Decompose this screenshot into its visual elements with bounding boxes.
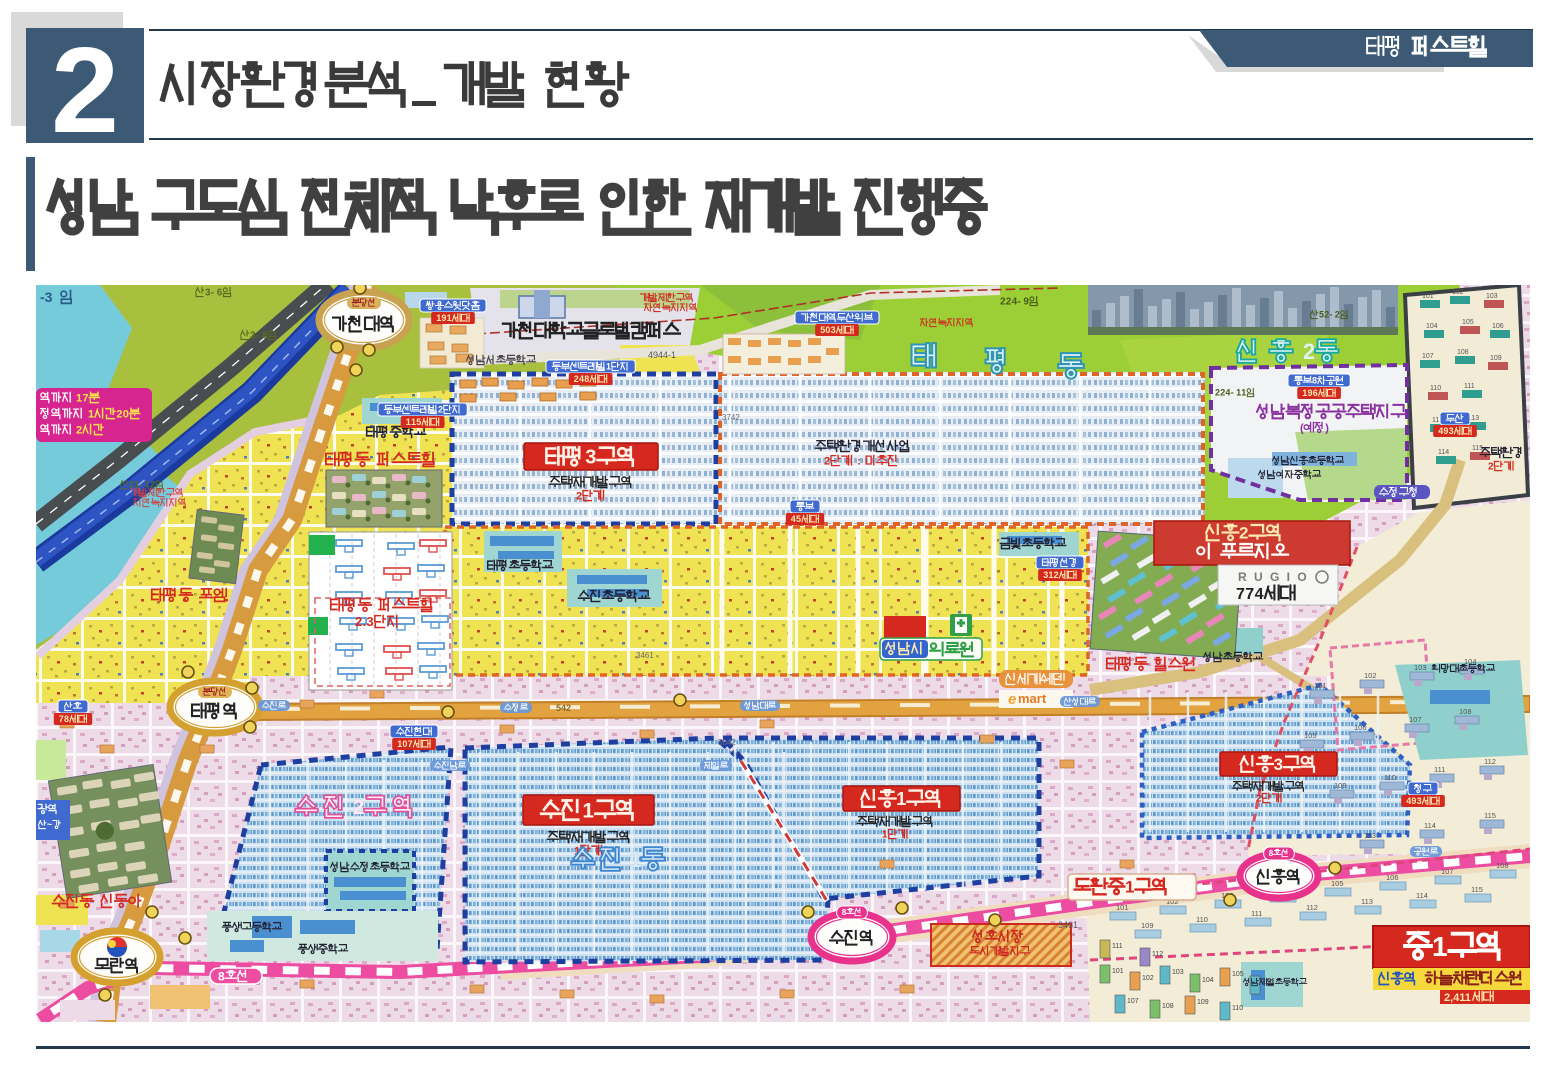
svg-text:1: 1 <box>447 313 452 323</box>
svg-text:8: 8 <box>1269 849 1274 858</box>
svg-text:115: 115 <box>1472 445 1483 452</box>
svg-text:114: 114 <box>1424 821 1436 830</box>
svg-text:542: 542 <box>556 703 571 713</box>
svg-text:mart: mart <box>1018 691 1047 706</box>
svg-text:109: 109 <box>1490 355 1502 362</box>
svg-text:109: 109 <box>1197 999 1209 1006</box>
svg-text:108: 108 <box>1162 1003 1174 1010</box>
svg-text:2: 2 <box>438 405 443 415</box>
svg-text:101: 101 <box>1422 293 1434 300</box>
svg-text:114: 114 <box>1416 891 1428 900</box>
svg-text:2: 2 <box>1488 462 1494 473</box>
svg-text:101: 101 <box>1112 968 1124 975</box>
svg-text:2: 2 <box>116 409 122 421</box>
svg-text:102: 102 <box>1142 975 1154 982</box>
svg-text:105: 105 <box>1304 731 1317 740</box>
svg-text:3: 3 <box>585 447 596 469</box>
svg-text:102: 102 <box>1364 671 1377 680</box>
svg-text:1: 1 <box>76 393 82 405</box>
svg-text:108: 108 <box>1459 707 1472 716</box>
svg-text:5: 5 <box>796 514 801 524</box>
svg-text:3: 3 <box>831 325 836 335</box>
svg-text:112: 112 <box>1152 951 1163 958</box>
svg-text:102: 102 <box>1452 289 1464 296</box>
svg-text:8: 8 <box>64 714 69 724</box>
svg-text:106: 106 <box>1492 323 1504 330</box>
svg-text:112: 112 <box>1306 903 1318 912</box>
svg-text:4944-1: 4944-1 <box>648 350 676 360</box>
svg-text:3: 3 <box>366 614 373 629</box>
svg-text:1: 1 <box>582 800 594 823</box>
svg-text:108: 108 <box>1496 861 1509 870</box>
svg-text:1: 1 <box>629 847 641 872</box>
svg-text:105: 105 <box>1462 319 1474 326</box>
svg-text:104: 104 <box>1426 323 1438 330</box>
svg-text:8: 8 <box>842 908 847 917</box>
svg-text:110: 110 <box>1430 385 1441 392</box>
svg-text:4: 4 <box>1255 586 1264 603</box>
svg-text:110: 110 <box>1232 1005 1243 1012</box>
svg-text:6: 6 <box>217 288 223 299</box>
svg-text:115: 115 <box>1471 885 1483 894</box>
svg-text:-: - <box>1329 310 1332 320</box>
svg-text:8: 8 <box>1312 376 1317 386</box>
svg-text:3461: 3461 <box>636 651 654 660</box>
svg-text:-: - <box>1231 388 1234 398</box>
svg-text:108: 108 <box>1457 349 1469 356</box>
svg-text:111: 111 <box>1112 943 1123 950</box>
svg-text:2: 2 <box>353 796 365 819</box>
svg-text:115: 115 <box>1484 811 1496 820</box>
svg-text:9: 9 <box>1023 297 1029 308</box>
svg-text:7: 7 <box>1245 586 1254 603</box>
svg-text:8: 8 <box>584 374 589 384</box>
svg-text:2,411: 2,411 <box>1444 992 1471 1004</box>
svg-text:113: 113 <box>1364 831 1376 840</box>
svg-text::: : <box>857 456 861 468</box>
svg-text:103: 103 <box>1172 969 1184 976</box>
svg-text:5: 5 <box>416 417 421 427</box>
svg-text:2: 2 <box>824 456 830 468</box>
svg-text:105: 105 <box>1331 879 1344 888</box>
svg-text:103: 103 <box>1414 663 1427 672</box>
svg-text:112: 112 <box>1484 757 1496 766</box>
svg-text:1: 1 <box>882 830 888 841</box>
svg-text:2: 2 <box>1335 310 1340 320</box>
svg-text:105: 105 <box>1232 971 1244 978</box>
svg-text:-: - <box>1017 297 1020 308</box>
svg-text:0: 0 <box>123 409 129 421</box>
svg-text:106: 106 <box>1354 723 1367 732</box>
svg-text:111: 111 <box>1251 909 1262 918</box>
svg-text:104: 104 <box>1202 977 1214 984</box>
svg-text:(: ( <box>1300 423 1304 435</box>
svg-text:2: 2 <box>576 491 582 503</box>
svg-text:8: 8 <box>218 969 225 983</box>
svg-text:R U G I O: R U G I O <box>1238 570 1309 584</box>
svg-text:107: 107 <box>1441 867 1454 876</box>
svg-text:2: 2 <box>76 425 82 437</box>
svg-text:101: 101 <box>1314 681 1327 690</box>
svg-text:-3: -3 <box>40 289 53 305</box>
svg-text:5042: 5042 <box>718 738 736 747</box>
svg-text:6: 6 <box>1313 388 1318 398</box>
svg-text:~: ~ <box>47 820 52 830</box>
svg-text:107: 107 <box>1422 353 1434 360</box>
svg-text:109: 109 <box>1141 921 1154 930</box>
svg-text:2: 2 <box>1303 339 1315 364</box>
svg-text:1: 1 <box>88 409 94 421</box>
svg-text:7: 7 <box>82 393 88 405</box>
svg-text:1: 1 <box>1241 388 1246 398</box>
svg-text:): ) <box>1325 423 1329 435</box>
svg-text:1: 1 <box>606 362 611 372</box>
svg-text:2: 2 <box>355 614 362 629</box>
svg-text:3: 3 <box>1449 426 1454 436</box>
svg-text:3461: 3461 <box>1058 920 1078 930</box>
svg-text:3: 3 <box>1274 755 1283 774</box>
svg-text:113: 113 <box>1361 897 1373 906</box>
svg-text:111: 111 <box>1464 383 1475 390</box>
svg-text:103: 103 <box>1486 293 1498 300</box>
svg-text:2: 2 <box>1256 794 1262 805</box>
svg-text:-: - <box>256 331 259 342</box>
svg-text:4: 4 <box>1225 388 1230 398</box>
svg-text:107: 107 <box>1409 715 1422 724</box>
svg-text:1: 1 <box>1432 931 1448 962</box>
svg-text:2: 2 <box>1054 570 1059 580</box>
svg-text:110: 110 <box>1196 915 1208 924</box>
svg-text:114: 114 <box>1438 449 1449 456</box>
svg-text:7: 7 <box>408 739 413 749</box>
svg-text:1: 1 <box>1125 878 1134 897</box>
svg-text:111: 111 <box>1434 765 1445 774</box>
svg-text:8: 8 <box>262 331 268 342</box>
svg-text:107: 107 <box>1127 998 1139 1005</box>
svg-text:7: 7 <box>1236 586 1245 603</box>
svg-text:e: e <box>1008 691 1016 708</box>
svg-text:3742: 3742 <box>722 413 740 422</box>
svg-text:110: 110 <box>1384 773 1396 782</box>
svg-text:2: 2 <box>1239 524 1248 543</box>
svg-text:3: 3 <box>1417 796 1422 806</box>
svg-text:106: 106 <box>1386 873 1399 882</box>
svg-text:-: - <box>211 288 214 299</box>
svg-text:101: 101 <box>1116 903 1129 912</box>
svg-text:1: 1 <box>896 789 906 809</box>
svg-text:109: 109 <box>1334 781 1347 790</box>
